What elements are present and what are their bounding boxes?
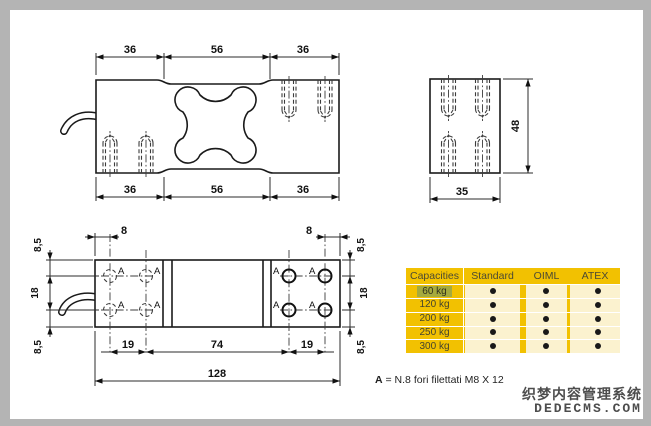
hole-a-label: A [309, 266, 316, 277]
capacity-text: 250 kg [419, 327, 449, 338]
bottom-view-dim-8-right: 8 [306, 225, 350, 256]
thread-note-prefix: A [375, 374, 383, 386]
dim-label: 8 [306, 225, 312, 237]
capacity-value: 300 kg [406, 339, 463, 353]
dim-label: 8 [121, 225, 127, 237]
availability-dot [490, 316, 496, 322]
dim-label: 18 [30, 287, 41, 299]
table-header-standard: Standard [465, 268, 520, 284]
availability-dot [490, 329, 496, 335]
hole-a-label: A [154, 266, 161, 277]
dim-label: 35 [456, 186, 468, 198]
top-view-dim-bottom: 36 56 36 [96, 177, 339, 201]
capacity-row: 300 kg [406, 339, 620, 353]
dim-label: 19 [301, 339, 313, 351]
availability-dot [543, 329, 549, 335]
availability-dot [595, 316, 601, 322]
bottom-view: A A A A A A A A 8 8 [30, 225, 370, 386]
hole-a-label: A [273, 300, 280, 311]
availability-dot [490, 302, 496, 308]
top-view: 36 56 36 36 56 36 [64, 44, 339, 201]
dim-label: 36 [297, 44, 309, 56]
dim-label: 19 [122, 339, 134, 351]
availability-dot [490, 288, 496, 294]
capacity-value: 60 kg [406, 284, 463, 298]
availability-dot [490, 343, 496, 349]
capacity-row: 60 kg [406, 284, 620, 298]
dim-label: 128 [208, 368, 226, 380]
thread-note: A = N.8 fori filettati M8 X 12 [375, 374, 504, 386]
capacity-table: Capacities Standard OIML ATEX 60 kg120 k… [406, 268, 620, 353]
capacity-row: 120 kg [406, 298, 620, 312]
table-header-oiml: OIML [526, 268, 567, 284]
availability-dot [543, 288, 549, 294]
watermark: 织梦内容管理系统 DEDECMS.COM [522, 387, 642, 415]
availability-dot [595, 302, 601, 308]
technical-drawing: 36 56 36 36 56 36 [0, 0, 651, 426]
dim-label: 18 [359, 287, 370, 299]
capacity-text-highlighted: 60 kg [417, 286, 451, 297]
capacity-text: 120 kg [419, 299, 449, 310]
capacity-value: 200 kg [406, 312, 463, 326]
table-header-atex: ATEX [570, 268, 620, 284]
hole-a-label: A [118, 266, 125, 277]
datasheet-screenshot: 36 56 36 36 56 36 [0, 0, 651, 426]
bottom-view-dim-right: 8,5 18 8,5 [342, 238, 370, 354]
capacity-row: 200 kg [406, 312, 620, 326]
end-view: 48 35 [430, 75, 533, 203]
end-view-dim-width: 35 [430, 177, 500, 203]
availability-dot [543, 343, 549, 349]
dim-label: 56 [211, 184, 223, 196]
watermark-dedecms-text: DEDECMS.COM [522, 402, 642, 416]
dim-label: 74 [211, 339, 224, 351]
thread-note-text: = N.8 fori filettati M8 X 12 [383, 374, 504, 386]
end-view-dim-height: 48 [503, 79, 533, 173]
capacity-text: 300 kg [419, 341, 449, 352]
table-header-capacities: Capacities [406, 268, 463, 284]
watermark-cjk-text: 织梦内容管理系统 [522, 387, 642, 402]
hole-a-label: A [154, 300, 161, 311]
dim-label: 56 [211, 44, 223, 56]
top-view-body-outline [96, 80, 339, 173]
availability-dot [595, 288, 601, 294]
availability-dot [595, 329, 601, 335]
capacity-text: 200 kg [419, 313, 449, 324]
hole-a-label: A [118, 300, 125, 311]
availability-dot [543, 316, 549, 322]
dim-label: 8,5 [33, 238, 44, 252]
dim-label: 8,5 [33, 340, 44, 354]
bottom-view-dim-chain: 19 74 19 [101, 339, 334, 355]
top-view-dim-top: 36 56 36 [96, 44, 339, 79]
hole-a-label: A [273, 266, 280, 277]
bottom-view-dim-8-left: 8 [85, 225, 127, 256]
dim-label: 36 [124, 184, 136, 196]
hole-a-label: A [309, 300, 316, 311]
dim-label: 48 [510, 120, 522, 132]
dim-label: 8,5 [356, 340, 367, 354]
capacity-value: 250 kg [406, 325, 463, 339]
availability-dot [595, 343, 601, 349]
capacity-value: 120 kg [406, 298, 463, 312]
availability-dot [543, 302, 549, 308]
dim-label: 36 [124, 44, 136, 56]
dim-label: 36 [297, 184, 309, 196]
dim-label: 8,5 [356, 238, 367, 252]
capacity-row: 250 kg [406, 325, 620, 339]
bottom-view-body-outline [95, 260, 340, 327]
